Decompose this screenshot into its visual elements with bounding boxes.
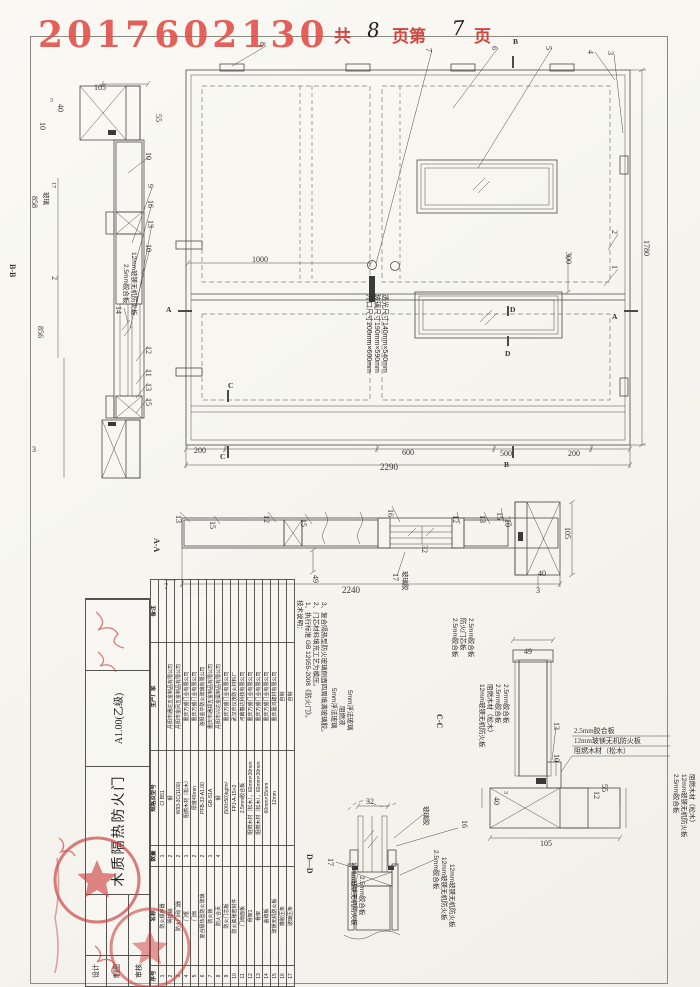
table-cell xyxy=(239,580,247,643)
dim-vision-offset: 300 xyxy=(564,252,572,264)
section-bb-drawing xyxy=(30,78,180,488)
marker-c-bottom: C xyxy=(220,453,225,461)
table-cell xyxy=(247,580,255,643)
table-cell xyxy=(199,580,207,643)
table-cell: 丹阳市兴达金属制品有限公司 xyxy=(215,643,223,751)
bb-glass-label: 玻璃 xyxy=(42,192,52,205)
cc-right-ann-2: 12mm玻镁无机防火板 xyxy=(574,738,641,745)
table-cell: 防火合页 xyxy=(215,867,223,966)
table-cell: 重庆万盛门业有限公司 xyxy=(247,643,255,751)
table-row: 9防火门芯板(500±50)kg/m³重庆万盛门业有限公司 xyxy=(223,580,231,987)
table-cell: 60mm×15mm xyxy=(263,751,271,846)
table-cell: GB-S1A xyxy=(207,751,215,846)
cc-left-ann1-3: 2.5mm胶合板 xyxy=(467,618,477,657)
dd-left-ann-3: 5mm浮法玻璃 xyxy=(346,690,356,730)
table-cell xyxy=(287,580,295,643)
bb-dim-858: 858 xyxy=(30,196,38,208)
pages-current-handwritten: 7 xyxy=(451,16,465,41)
table-cell: 8 xyxy=(215,966,223,987)
callout-6: 6 xyxy=(490,46,498,50)
table-row: 11门扇面板2.5mm胶合板河南春达科技有限公司 xyxy=(239,580,247,987)
bb-callout-13a: 13 xyxy=(146,220,154,228)
bb-callout-14: 14 xyxy=(114,306,122,314)
dd-bl-ann-2: 2.5mm胶合板 xyxy=(358,876,368,915)
table-cell: 4 xyxy=(215,846,223,867)
notes-item-3: 3、复合隔热型防火玻璃侧面四周填满玻璃胶。 xyxy=(320,602,330,736)
cc-dim-105: 105 xyxy=(540,840,552,848)
marker-d-top: D xyxy=(510,306,515,314)
table-cell: 防火门芯板 xyxy=(223,867,231,966)
table-cell: FPJ-A-15×2 xyxy=(231,751,239,846)
table-row: 10防火膨胀密封件FPJ-A-15×2武汉市仪茂防火材料厂 xyxy=(231,580,239,987)
bb-dim-55: 55 xyxy=(154,114,162,122)
callout-5: 5 xyxy=(544,46,552,50)
table-cell: 1 xyxy=(207,846,215,867)
table-cell xyxy=(279,846,287,867)
aa-dim-32: 32 xyxy=(420,545,428,553)
aa-glue-label: 玻璃胶 xyxy=(401,571,411,591)
dd-dim-32: 32 xyxy=(366,798,374,806)
drawing-sheet: 2017602130 共 8 页第 7 页 xyxy=(0,0,700,987)
aa-dim-2240: 2240 xyxy=(342,586,360,595)
callout-7: 7 xyxy=(424,48,432,52)
table-cell: 重庆万盛门业有限公司 xyxy=(255,643,263,751)
table-cell: 16 xyxy=(279,966,287,987)
table-cell: 11 xyxy=(239,966,247,987)
table-cell xyxy=(183,580,191,643)
section-bb-label: B-B xyxy=(8,264,16,277)
bb-dim-3: 3 xyxy=(50,98,53,104)
table-cell xyxy=(159,580,167,643)
table-cell: 自制 xyxy=(279,643,287,751)
table-row: 12骨架1阻燃木材（松木），60mm×30mm重庆万盛门业有限公司 xyxy=(247,580,255,987)
bb-dim-856: 856 xyxy=(36,326,44,338)
aa-dim-3: 3 xyxy=(536,587,540,595)
bb-callout-13b: 13 xyxy=(144,383,152,391)
table-cell: 15 xyxy=(271,966,279,987)
aa-dim-105: 105 xyxy=(563,527,571,539)
aa-callout-15c: 15 xyxy=(495,512,503,520)
table-cell: 橡胶压条 xyxy=(279,867,287,966)
dim-seg-mid2: 500 xyxy=(500,450,512,458)
glass-note-line3: 透光尺寸140mm×540mm xyxy=(380,294,390,373)
table-cell xyxy=(247,846,255,867)
table-cell xyxy=(239,846,247,867)
dim-seg-mid1: 600 xyxy=(402,449,414,457)
table-cell xyxy=(159,643,167,751)
dd-callout-16: 16 xyxy=(460,820,468,828)
table-cell xyxy=(287,846,295,867)
dim-seg-right: 200 xyxy=(568,450,580,458)
table-cell: 自制 xyxy=(287,643,295,751)
table-cell xyxy=(231,846,239,867)
table-row: 14盖缝板60mm×15mm重庆万盛门业有限公司 xyxy=(263,580,271,987)
table-cell: 12mm xyxy=(271,751,279,846)
marker-b-bottom: B xyxy=(504,461,509,469)
dim-seg-left: 200 xyxy=(194,447,206,455)
table-cell: 丹阳市金凤五金制品有限公司 xyxy=(175,643,183,751)
aa-callout-17: 17 xyxy=(391,573,399,581)
table-cell: 10 xyxy=(231,966,239,987)
table-cell xyxy=(279,580,287,643)
bb-callout-9: 9 xyxy=(146,184,154,188)
table-cell xyxy=(231,580,239,643)
callout-1: 1 xyxy=(610,265,618,269)
table-cell xyxy=(223,580,231,643)
cc-callout-13: 13 xyxy=(552,722,560,730)
table-cell: 武汉市仪茂防火材料厂 xyxy=(231,643,239,751)
table-cell: 门扇面板 xyxy=(239,867,247,966)
table-cell: 重庆市通郑五金制品有限公司 xyxy=(207,643,215,751)
bb-dim-17: 17 xyxy=(50,182,56,188)
table-cell: 防火锁 xyxy=(207,867,215,966)
table-row: 15玻镁无机防火板12mm重庆嘉鸿建材有限公司 xyxy=(271,580,279,987)
table-cell: 重庆万盛门业有限公司 xyxy=(223,643,231,751)
detail-cc-label: C-C xyxy=(435,714,443,728)
table-row: 13骨架阻燃木材（松木），60mm×30mm重庆万盛门业有限公司 xyxy=(255,580,263,987)
marker-d-bottom: D xyxy=(505,350,510,358)
table-cell: 钢 xyxy=(215,751,223,846)
bb-callout-15: 15 xyxy=(144,398,152,406)
table-cell xyxy=(191,580,199,643)
aa-callout-12b: 12 xyxy=(451,515,459,523)
table-cell: 盖缝板 xyxy=(263,867,271,966)
table-cell xyxy=(255,846,263,867)
table-cell: 17 xyxy=(287,966,295,987)
dim-height: 1780 xyxy=(642,240,650,256)
bom-header-cell: 备注 xyxy=(151,580,159,643)
door-elevation-drawing xyxy=(168,38,668,478)
bb-dim-10: 10 xyxy=(38,122,46,130)
callout-4: 4 xyxy=(586,50,594,54)
cc-edge-ann-3: 阻燃木材（松木） xyxy=(688,774,698,826)
marker-b-top: B xyxy=(513,38,518,46)
table-cell: 阻燃木材（松木），60mm×30mm xyxy=(247,751,255,846)
table-cell: 丹阳市通达五金制品有限公司 xyxy=(167,643,175,751)
cc-right-ann-1: 2.5mm胶合板 xyxy=(574,728,615,735)
bb-callout-10a: 10 xyxy=(144,152,152,160)
table-cell: 7 xyxy=(207,966,215,987)
bb-callout-11: 11 xyxy=(144,369,152,377)
table-cell: 河南春达科技有限公司 xyxy=(239,643,247,751)
table-cell: 重庆万盛门业有限公司 xyxy=(263,643,271,751)
table-cell: 重庆万盛门业有限公司 xyxy=(183,643,191,751)
callout-3: 3 xyxy=(606,51,614,55)
table-cell xyxy=(215,580,223,643)
aa-callout-13: 13 xyxy=(174,515,182,523)
table-cell xyxy=(279,751,287,846)
dim-lock-offset: 1000 xyxy=(252,256,268,264)
table-cell: 9 xyxy=(223,966,231,987)
bb-callout-16: 16 xyxy=(146,200,154,208)
aa-callout-12a: 12 xyxy=(262,515,270,523)
table-cell xyxy=(287,751,295,846)
table-cell: 洛阳金平防火玻璃有限公司 xyxy=(199,643,207,751)
bb-callout-10b: 10 xyxy=(144,244,152,252)
table-cell: 重庆万盛门业有限公司 xyxy=(191,643,199,751)
table-cell: 12 xyxy=(247,966,255,987)
bb-callout-12: 12 xyxy=(144,346,152,354)
aa-dim-40: 40 xyxy=(538,570,546,578)
dd-right-ann-3: 12mm玻镁无机防火板 xyxy=(448,864,458,928)
aa-callout-15b: 15 xyxy=(299,519,307,527)
marker-c-top: C xyxy=(228,382,233,390)
dd-glue-label: 玻璃胶 xyxy=(422,806,432,826)
red-signature-scribbles xyxy=(88,600,148,690)
detail-dd-label: D—D xyxy=(305,854,313,874)
table-cell xyxy=(263,846,271,867)
table-cell xyxy=(271,580,279,643)
table-cell: 重庆嘉鸿建材有限公司 xyxy=(271,643,279,751)
cc-dim-3: 3 xyxy=(502,791,508,794)
bb-dim-2: 2 xyxy=(50,276,58,280)
table-row: 8防火合页4钢丹阳市兴达金属制品有限公司 xyxy=(215,580,223,987)
table-cell xyxy=(175,580,183,643)
table-cell: 骨架 xyxy=(255,867,263,966)
table-cell: 玻璃压条 xyxy=(287,867,295,966)
table-cell: 防火膨胀密封件 xyxy=(231,867,239,966)
bom-header-cell: 生产厂家 xyxy=(151,643,159,751)
table-row: 16橡胶压条自制 xyxy=(279,580,287,987)
section-aa-label: A-A xyxy=(152,538,160,552)
table-cell: 14 xyxy=(263,966,271,987)
aa-callout-15a: 15 xyxy=(208,521,216,529)
table-cell: 13 xyxy=(255,966,263,987)
aa-dim-49: 49 xyxy=(311,575,319,583)
cc-callout-10: 10 xyxy=(552,754,560,762)
table-cell: 阻燃木材（松木），60mm×30mm xyxy=(255,751,263,846)
cc-right-ann-3: 阻燃木材（松木） xyxy=(574,748,630,755)
table-cell: 玻镁无机防火板 xyxy=(271,867,279,966)
aa-callout-10: 10 xyxy=(503,519,511,527)
marker-a-right: A xyxy=(612,313,617,321)
table-cell xyxy=(207,580,215,643)
aa-callout-16: 16 xyxy=(386,509,394,517)
table-cell: 骨架1 xyxy=(247,867,255,966)
cc-dim-49: 49 xyxy=(524,648,532,656)
bb-dim-40: 40 xyxy=(56,104,64,112)
table-cell xyxy=(271,846,279,867)
bb-ann14-line2: 12mm玻镁无机防火板 xyxy=(130,252,140,316)
red-seal-stamps xyxy=(45,828,205,987)
aa-callout-13b: 13 xyxy=(478,515,486,523)
table-row: 17玻璃压条自制 xyxy=(287,580,295,987)
table-cell: 2.5mm胶合板 xyxy=(239,751,247,846)
cc-dim-12: 12 xyxy=(592,791,600,799)
table-cell xyxy=(167,580,175,643)
table-cell xyxy=(255,580,263,643)
bb-dim-3b: 3 xyxy=(32,446,36,454)
cc-left-ann2-4: 2.5mm胶合板 xyxy=(502,684,512,723)
dd-callout-17: 17 xyxy=(326,858,334,866)
bb-dim-105: 105 xyxy=(94,84,106,92)
cc-dim-55: 55 xyxy=(600,784,608,792)
cc-dim-40: 40 xyxy=(492,797,500,805)
table-cell: (500±50)kg/m³ xyxy=(223,751,231,846)
table-row: 7防火锁1GB-S1A重庆市通郑五金制品有限公司 xyxy=(207,580,215,987)
table-cell xyxy=(263,580,271,643)
dim-total-width: 2290 xyxy=(380,463,398,472)
callout-8: 8 xyxy=(258,42,266,46)
table-cell xyxy=(223,846,231,867)
callout-2: 2 xyxy=(610,230,618,234)
